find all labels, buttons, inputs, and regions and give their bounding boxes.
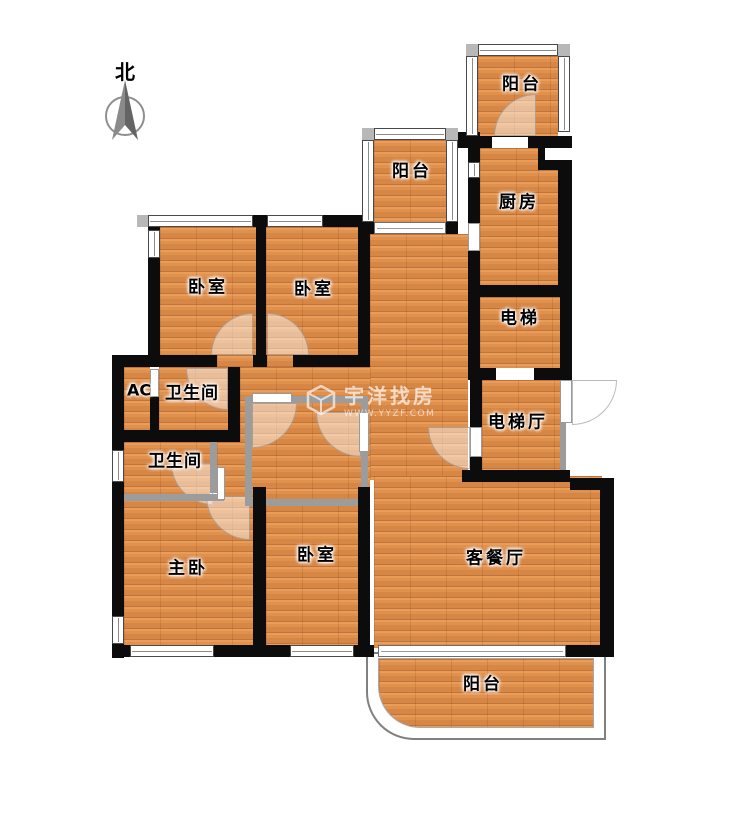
window [468, 162, 480, 178]
wall-segment [256, 227, 266, 355]
wall-segment [268, 645, 290, 657]
door-jamb [217, 467, 225, 500]
wall-segment [253, 487, 266, 645]
floor-door-patch [267, 355, 293, 367]
watermark-brand: 宇洋找房 [344, 385, 436, 407]
wall-segment [566, 645, 614, 657]
wall-cap [558, 44, 570, 56]
room-label-kitchen: 厨房 [499, 188, 539, 213]
room-label-living-dining: 客餐厅 [466, 544, 526, 569]
wall-segment [358, 227, 370, 367]
room-label-bedroom-bottom: 卧室 [297, 541, 337, 566]
window [466, 56, 478, 136]
floor-kitchen [480, 148, 540, 285]
wall-segment [470, 380, 482, 427]
floor-bedroom-bottom [266, 500, 358, 645]
floor-door-patch [217, 355, 253, 367]
window [478, 44, 558, 56]
wall-segment [354, 645, 374, 657]
window [374, 128, 446, 140]
wall-segment [462, 470, 570, 482]
watermark: 宇洋找房 WWW.YYZF.COM [306, 385, 436, 419]
sliding-door [374, 222, 446, 234]
watermark-texts: 宇洋找房 WWW.YYZF.COM [344, 385, 436, 419]
compass: 北 [95, 56, 155, 148]
room-label-bedroom-mid: 卧室 [294, 275, 334, 300]
wall-segment [150, 397, 159, 430]
window [267, 215, 323, 227]
window [290, 645, 354, 657]
wall-segment [358, 487, 370, 657]
wall-segment [112, 645, 132, 657]
room-label-bathroom-top: 卫生间 [165, 379, 219, 404]
wall-segment [214, 645, 268, 657]
wall-segment [112, 355, 124, 658]
window [112, 616, 124, 644]
window [148, 230, 160, 258]
window [148, 215, 253, 227]
floor-plan: 阳台 阳台 厨房 卧室 卧室 电梯 电梯厅 AC 卫生间 卫生间 主卧 卧室 客… [0, 0, 744, 813]
wall-cap [466, 44, 478, 56]
door-jamb [468, 223, 480, 251]
partition-wall [210, 442, 217, 493]
window [362, 140, 374, 222]
window [130, 645, 214, 657]
wall-segment [558, 168, 572, 285]
wall-cap [446, 128, 458, 140]
floor-kitchen [538, 170, 560, 285]
partition-wall [124, 494, 224, 501]
room-label-bedroom-left: 卧室 [188, 273, 228, 298]
window [558, 56, 570, 132]
elevator-door-opening [496, 368, 534, 380]
wall-cap [137, 215, 148, 227]
partition-wall [245, 396, 252, 506]
wall-cap [362, 128, 374, 140]
wall-segment [468, 297, 480, 368]
watermark-logo-icon [306, 385, 336, 415]
wall-segment [560, 297, 572, 368]
door-swing-arc [572, 380, 617, 425]
watermark-url: WWW.YYZF.COM [344, 409, 436, 419]
room-label-bathroom-bottom: 卫生间 [148, 447, 202, 472]
door-opening [492, 137, 528, 148]
window [112, 450, 124, 482]
window [446, 140, 458, 222]
sliding-door [378, 645, 566, 657]
balcony-bottom-enclosure [366, 652, 606, 740]
wall-segment [468, 285, 572, 297]
partition-wall [560, 423, 566, 470]
room-label-ac: AC [127, 381, 151, 400]
wall-segment [293, 355, 370, 367]
wall-segment [112, 355, 217, 367]
door-jamb [150, 369, 159, 397]
wall-segment [570, 478, 614, 490]
wall-segment [228, 367, 240, 430]
wall-segment [362, 222, 374, 234]
wall-segment [600, 490, 614, 657]
room-label-elevator-hall: 电梯厅 [488, 408, 548, 433]
entry-door-jamb [560, 380, 572, 423]
room-label-balcony-bottom: 阳台 [463, 670, 503, 695]
room-label-balcony-mid: 阳台 [392, 157, 432, 182]
door-jamb [252, 393, 292, 403]
room-label-master-bedroom: 主卧 [168, 554, 208, 579]
wall-segment [446, 222, 458, 234]
wall-segment [253, 215, 267, 227]
wall-segment [112, 430, 240, 442]
wall-segment [253, 355, 267, 367]
door-jamb [470, 427, 482, 457]
compass-icon [103, 78, 147, 144]
room-label-elevator: 电梯 [500, 304, 540, 329]
room-label-balcony-top: 阳台 [502, 70, 542, 95]
